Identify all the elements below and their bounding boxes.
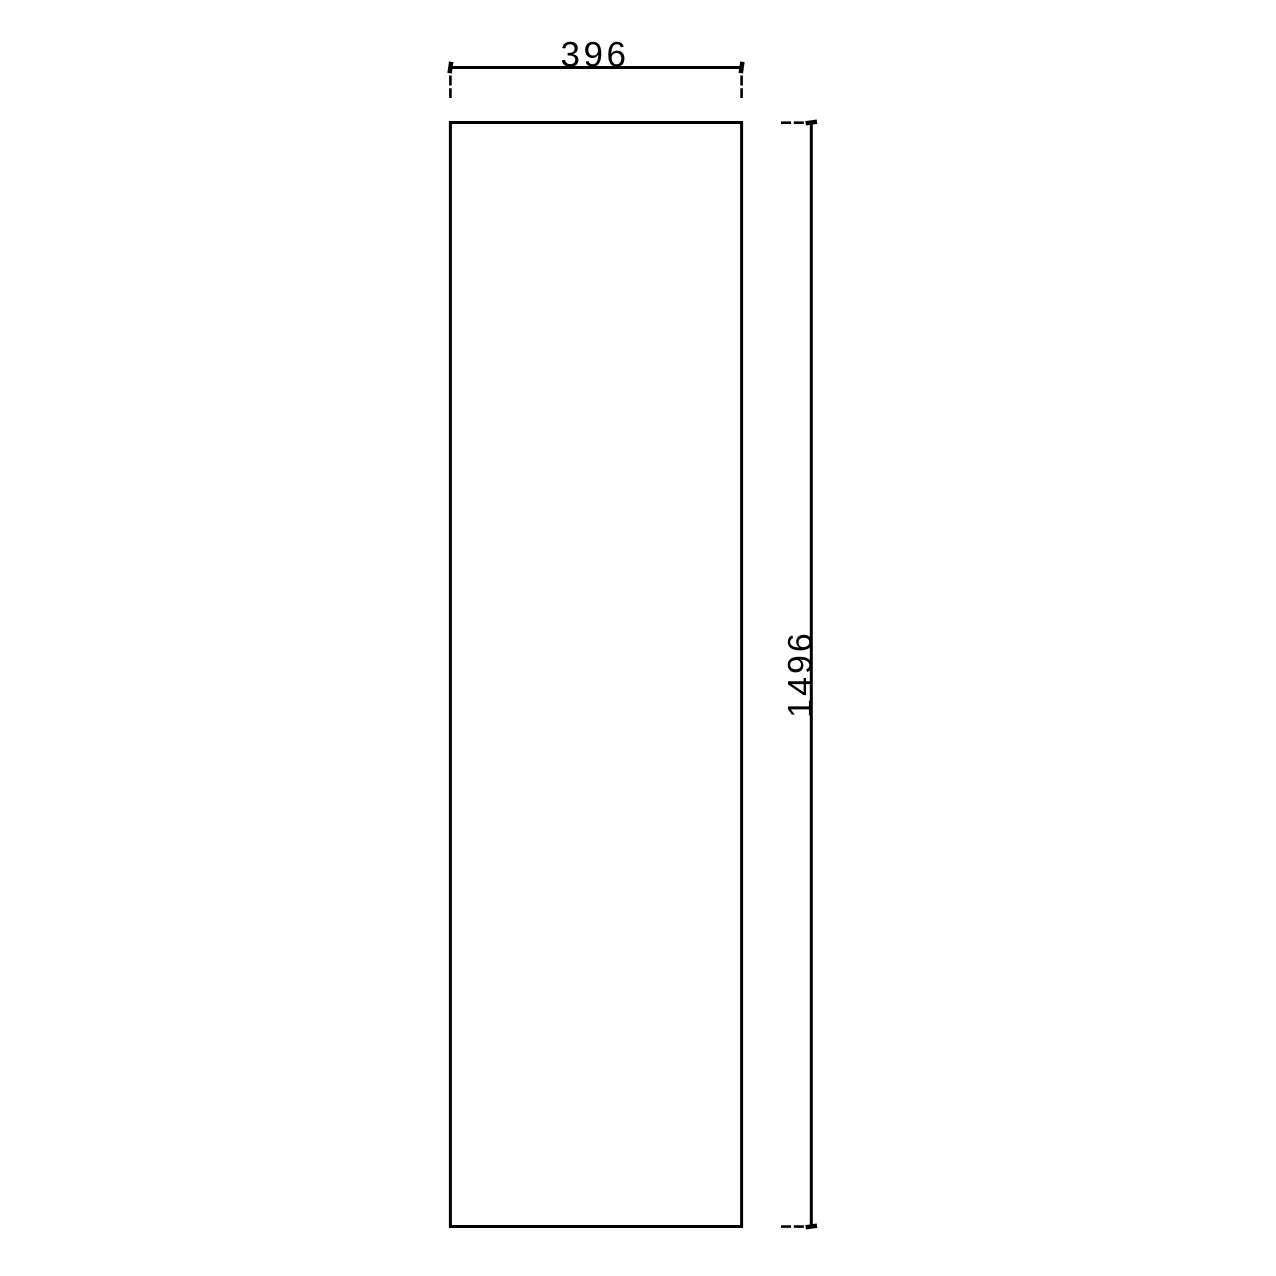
svg-text:396: 396: [561, 36, 630, 75]
svg-text:1496: 1496: [782, 630, 820, 718]
